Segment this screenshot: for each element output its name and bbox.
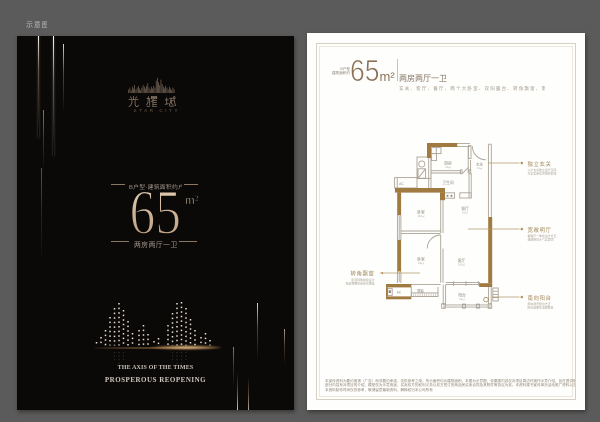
svg-text:玄关: 玄关 [476, 162, 483, 167]
svg-text:卧室: 卧室 [417, 210, 425, 215]
svg-text:通透格局大气又舒阔: 通透格局大气又舒阔 [528, 236, 554, 241]
svg-text:AC: AC [399, 182, 404, 186]
svg-text:65: 65 [130, 181, 182, 243]
svg-text:飘窗: 飘窗 [417, 288, 423, 293]
svg-text:宽敞明厅: 宽敞明厅 [528, 226, 552, 234]
svg-text:独立玄关: 独立玄关 [528, 160, 552, 168]
svg-text:AC: AC [397, 290, 402, 294]
svg-text:南向阳台: 南向阳台 [528, 294, 552, 302]
svg-text:9.8㎡: 9.8㎡ [418, 261, 424, 265]
svg-text:厨房: 厨房 [444, 161, 452, 166]
svg-text:卫生间: 卫生间 [442, 180, 454, 185]
svg-text:餐厅: 餐厅 [461, 206, 469, 211]
svg-text:阳光满屋生活更惬意: 阳光满屋生活更惬意 [528, 304, 554, 309]
svg-text:阳台: 阳台 [458, 293, 466, 298]
svg-text:m²: m² [380, 69, 396, 84]
svg-text:65: 65 [350, 54, 380, 85]
svg-text:10.6㎡: 10.6㎡ [418, 214, 425, 218]
svg-text:方正实用玄关柜好安排: 方正实用玄关柜好安排 [528, 170, 557, 175]
svg-text:14.5㎡: 14.5㎡ [458, 263, 465, 267]
svg-text:卧室: 卧室 [417, 257, 425, 262]
svg-text:拓宽视野空间采光更佳: 拓宽视野空间采光更佳 [346, 281, 375, 286]
svg-text:9.2㎡: 9.2㎡ [462, 211, 468, 215]
svg-text:m²: m² [185, 193, 199, 207]
svg-text:客厅: 客厅 [458, 258, 466, 263]
svg-text:转角飘窗: 转角飘窗 [351, 270, 375, 278]
